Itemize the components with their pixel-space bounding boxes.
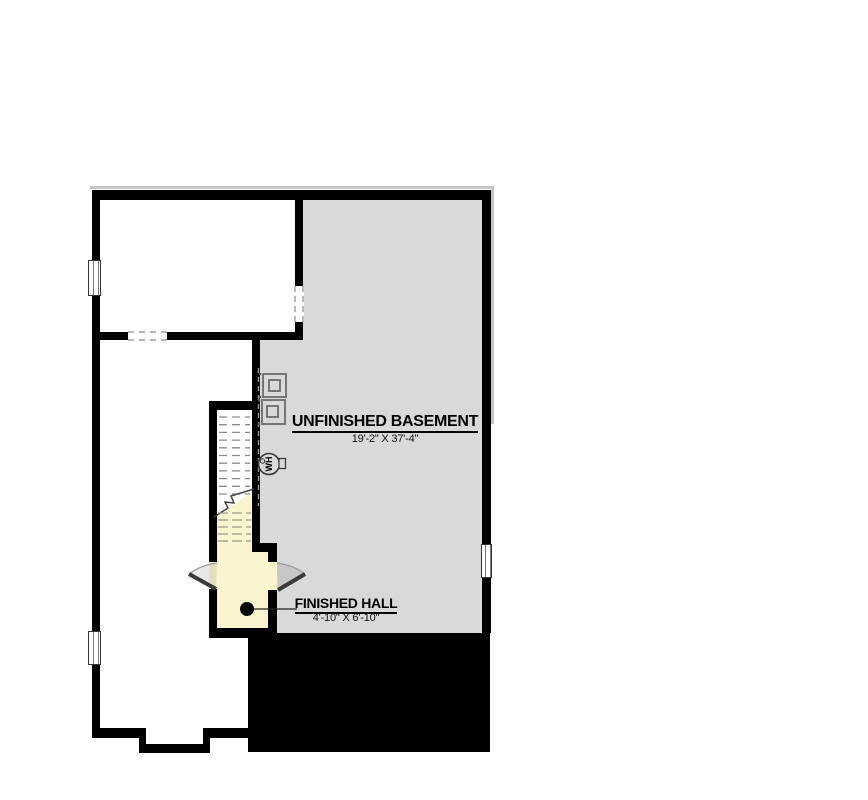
label-finished-hall-dims: 4'-10" X 6'-10" [276, 612, 416, 624]
wall-hall-left [209, 401, 217, 638]
window-left-lower [88, 631, 101, 665]
door-gap-right [268, 562, 277, 590]
opening-room-bottom [128, 331, 167, 341]
furnace-unit-2 [261, 399, 286, 425]
furnace-unit-2-inner [266, 405, 279, 418]
wall-hall-bottom [209, 628, 277, 638]
window-pane [93, 261, 99, 295]
water-heater-label: WH [258, 453, 280, 475]
window-pane [93, 632, 99, 664]
wall-notch-bottom [139, 744, 210, 753]
floor-plan: WH UNFINISHED BASEMENT 19'-2" X 37'-4" F… [0, 0, 868, 800]
furnace-unit-1 [262, 373, 287, 398]
label-finished-hall: FINISHED HALL [276, 595, 416, 611]
furnace-unit-1-inner [268, 379, 281, 392]
door-gap-left [209, 562, 217, 589]
window-pane [485, 545, 491, 577]
window-right [481, 544, 492, 578]
window-left-upper [88, 260, 101, 296]
opening-room-right [294, 286, 304, 322]
label-unfinished-basement-dims: 19'-2" X 37'-4" [285, 433, 485, 445]
wall-bottom-center [203, 728, 249, 738]
filled-slab-area [248, 633, 490, 752]
wall-room-bottom [92, 332, 303, 340]
label-unfinished-basement: UNFINISHED BASEMENT [285, 413, 485, 431]
wall-stair-right [252, 334, 260, 552]
wall-top [92, 190, 491, 200]
wall-bottom-left [92, 728, 146, 738]
label-unfinished-basement-text: UNFINISHED BASEMENT [292, 413, 478, 433]
